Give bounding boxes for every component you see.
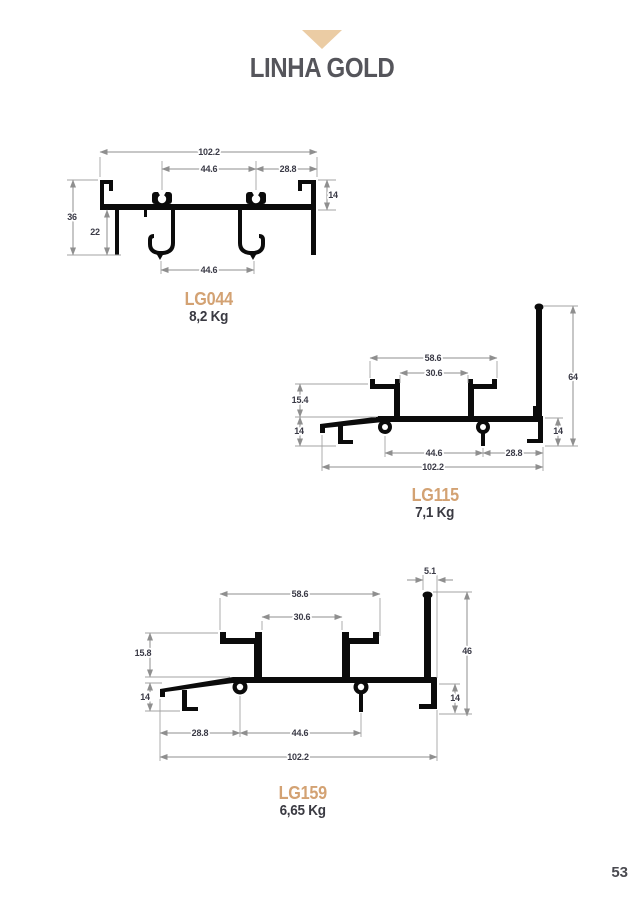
lg115-glazing-leg-right: [468, 379, 497, 416]
lg115-dimensions: 58.6 30.6 15.4 14 64 14 44.6 28.8 102.2: [292, 306, 578, 472]
lg044-profile-shape: [100, 180, 316, 260]
lg115-screw-boss-right: [476, 420, 490, 446]
dim-lg159-total-width: 102.2: [287, 752, 309, 762]
dim-lg159-fin-height: 46: [462, 646, 472, 656]
dim-lg044-lip-height: 14: [328, 190, 338, 200]
lg115-left-flange: [320, 416, 383, 433]
dim-lg159-left-offset: 28.8: [192, 728, 209, 738]
triangle-down-icon: [302, 30, 342, 49]
dim-lg159-glazing-inner: 30.6: [294, 612, 311, 622]
profile-code-lg115: LG115: [285, 486, 585, 505]
profile-drawing-lg044: 102.2 44.6 28.8 14 36 22 44.6: [55, 140, 345, 292]
dim-lg115-lower-left-height: 14: [294, 426, 304, 436]
lg159-dimensions: 5.1 58.6 30.6 15.8 14 46 14 28.8 44.6 10…: [135, 566, 472, 762]
profile-drawing-lg115: 58.6 30.6 15.4 14 64 14 44.6 28.8 102.2: [285, 295, 595, 480]
dim-lg159-lower-right-height: 14: [450, 693, 460, 703]
dim-lg044-track-spacing-top: 44.6: [201, 164, 218, 174]
lg159-glazing-leg-right: [342, 632, 379, 677]
dim-lg115-glazing-outer: 58.6: [425, 353, 442, 363]
dim-lg159-upper-left-height: 15.8: [135, 648, 152, 658]
dim-lg159-fin-offset: 5.1: [424, 566, 436, 576]
dim-lg115-fin-height: 64: [568, 372, 578, 382]
lg159-glazing-leg-left: [220, 632, 262, 677]
dim-lg115-boss-spacing: 44.6: [426, 448, 443, 458]
dim-lg044-total-width: 102.2: [198, 147, 220, 157]
page-title: LINHA GOLD: [0, 52, 644, 84]
lg044-dimensions: 102.2 44.6 28.8 14 36 22 44.6: [67, 147, 338, 275]
lg044-hook-channel-right: [240, 210, 263, 260]
lg044-roller-boss-right: [246, 192, 266, 204]
profile-drawing-lg159: 5.1 58.6 30.6 15.8 14 46 14 28.8 44.6 10…: [125, 560, 490, 772]
profile-weight-lg115: 7,1 Kg: [285, 505, 585, 521]
dim-lg115-glazing-inner: 30.6: [426, 368, 443, 378]
dim-lg159-lower-left-height: 14: [140, 692, 150, 702]
profile-weight-lg159: 6,65 Kg: [153, 803, 453, 819]
lg159-screw-boss-left: [233, 680, 248, 695]
dim-lg115-lower-right-height: 14: [553, 426, 563, 436]
dim-lg044-overall-height: 36: [67, 212, 77, 222]
dim-lg115-right-offset: 28.8: [506, 448, 523, 458]
lg044-roller-boss-left: [152, 192, 172, 204]
lg044-hook-channel-left: [150, 210, 173, 260]
page-number: 53: [580, 864, 628, 881]
lg115-screw-boss-left: [378, 420, 392, 434]
lg115-glazing-leg-left: [370, 379, 400, 416]
lg159-left-flange: [160, 677, 233, 697]
profile-code-lg159: LG159: [153, 784, 453, 803]
dim-lg115-total-width: 102.2: [422, 462, 444, 472]
catalog-page: LINHA GOLD: [0, 0, 644, 900]
dim-lg044-track-spacing-bottom: 44.6: [201, 265, 218, 275]
lg159-screw-boss-right: [354, 680, 369, 713]
lg159-profile-shape: [160, 592, 437, 713]
dim-lg159-glazing-outer: 58.6: [292, 589, 309, 599]
dim-lg044-lower-height: 22: [90, 227, 100, 237]
dim-lg159-boss-spacing: 44.6: [292, 728, 309, 738]
dim-lg115-upper-left-height: 15.4: [292, 395, 309, 405]
dim-lg044-right-offset: 28.8: [280, 164, 297, 174]
